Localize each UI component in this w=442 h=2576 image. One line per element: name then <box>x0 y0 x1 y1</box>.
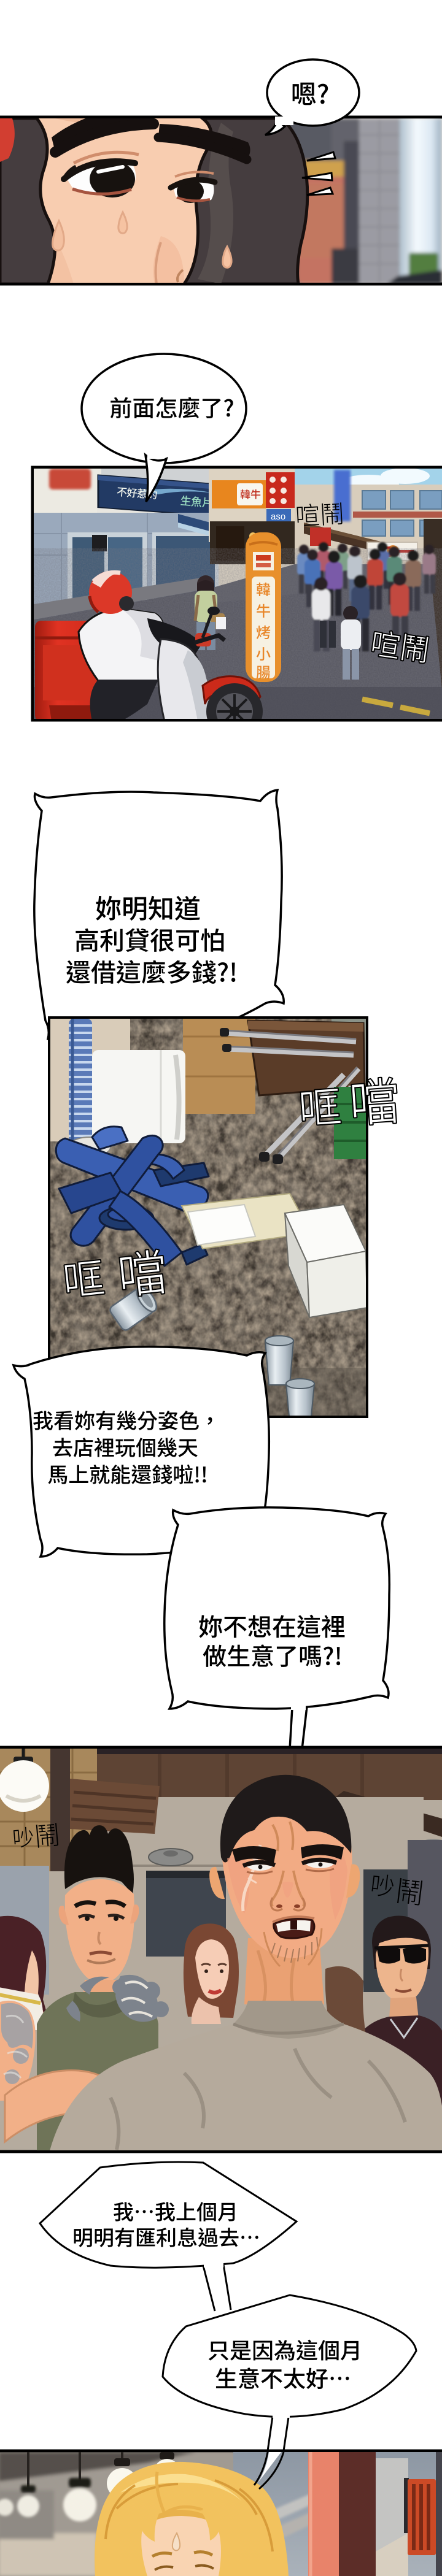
svg-text:aso: aso <box>271 512 285 522</box>
